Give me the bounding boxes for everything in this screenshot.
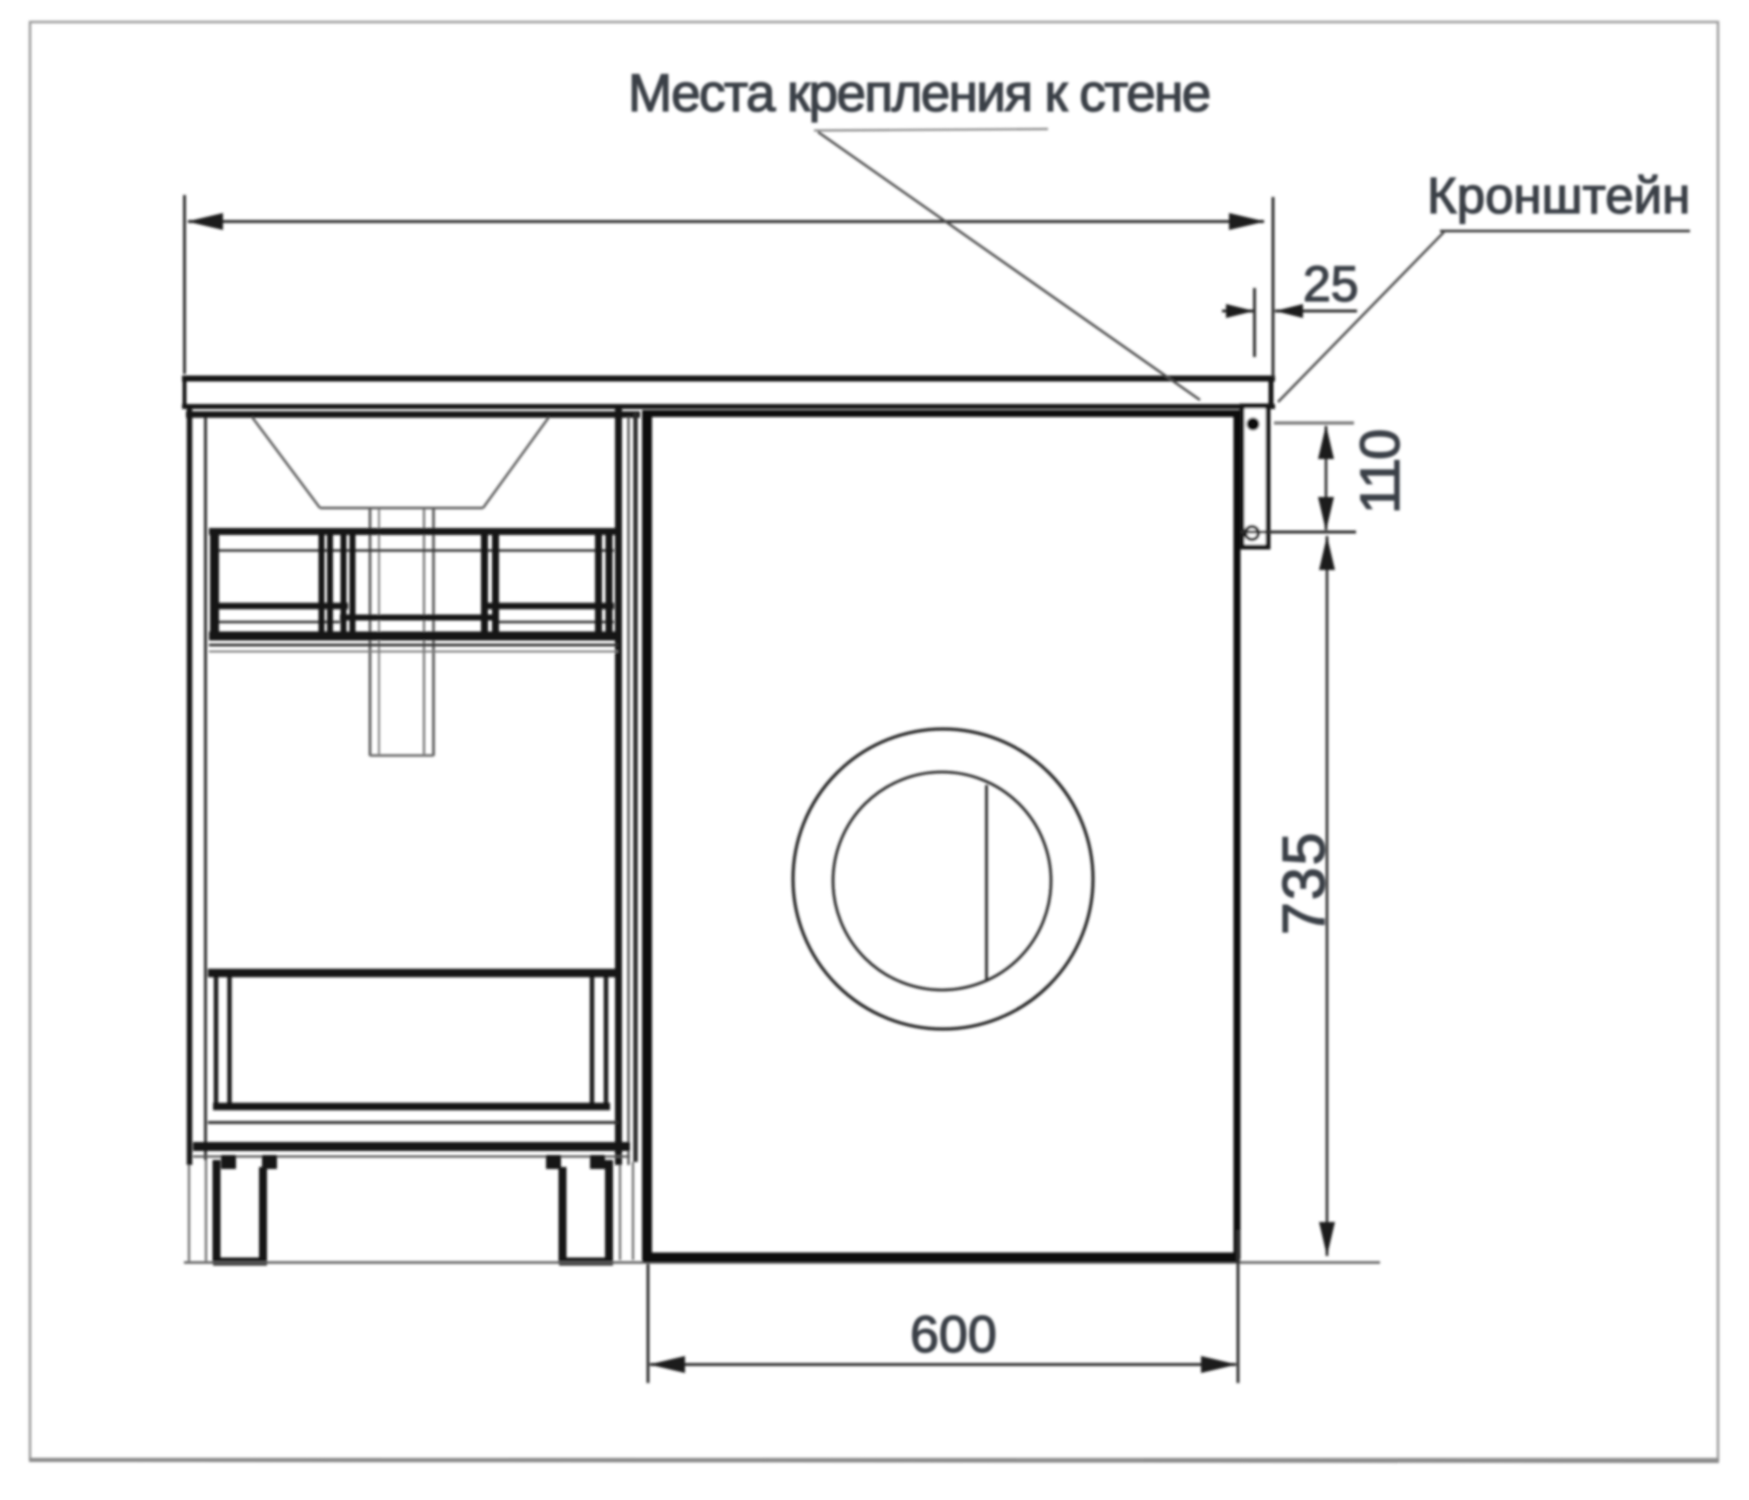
- svg-text:735: 735: [1271, 831, 1337, 935]
- svg-text:Места крепления к стене: Места крепления к стене: [628, 64, 1210, 123]
- svg-text:110: 110: [1348, 431, 1411, 514]
- svg-text:25: 25: [1303, 256, 1359, 312]
- svg-text:600: 600: [910, 1306, 997, 1364]
- svg-text:Кронштейн: Кронштейн: [1427, 167, 1690, 224]
